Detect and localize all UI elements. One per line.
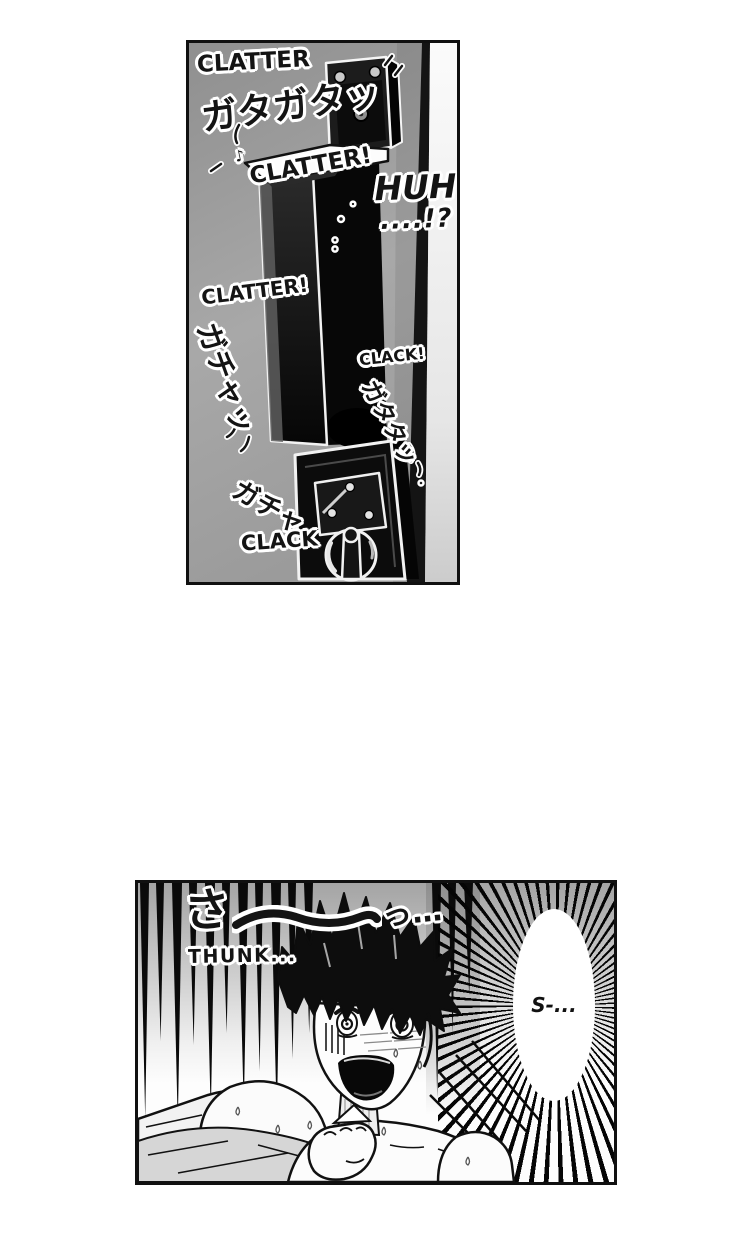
bedroom-panel: S-... <box>135 880 617 1185</box>
sfx-clack-bottom: CLACK <box>240 528 318 554</box>
sfx-huh-line2: ....!? <box>361 205 458 234</box>
sfx-thunk: THUNK... <box>188 946 297 967</box>
sfx-huh-line1: HUH <box>360 169 457 205</box>
door-frame-strip <box>425 43 457 582</box>
sfx-kana-sa-tail: っ… <box>381 896 444 932</box>
screw-icon <box>346 483 355 492</box>
sfx-clatter-top: CLATTER <box>196 48 310 77</box>
door-panel: CLATTER ガタガタッ CLATTER! ♪ HUH ....!? CLAT… <box>186 40 460 585</box>
manga-page: CLATTER ガタガタッ CLATTER! ♪ HUH ....!? CLAT… <box>0 0 750 1235</box>
sfx-huh: HUH ....!? <box>360 169 458 234</box>
screw-icon <box>328 509 337 518</box>
screw-icon <box>365 511 374 520</box>
sfx-wave <box>232 905 382 941</box>
sfx-kana-sa: さ <box>183 886 231 934</box>
